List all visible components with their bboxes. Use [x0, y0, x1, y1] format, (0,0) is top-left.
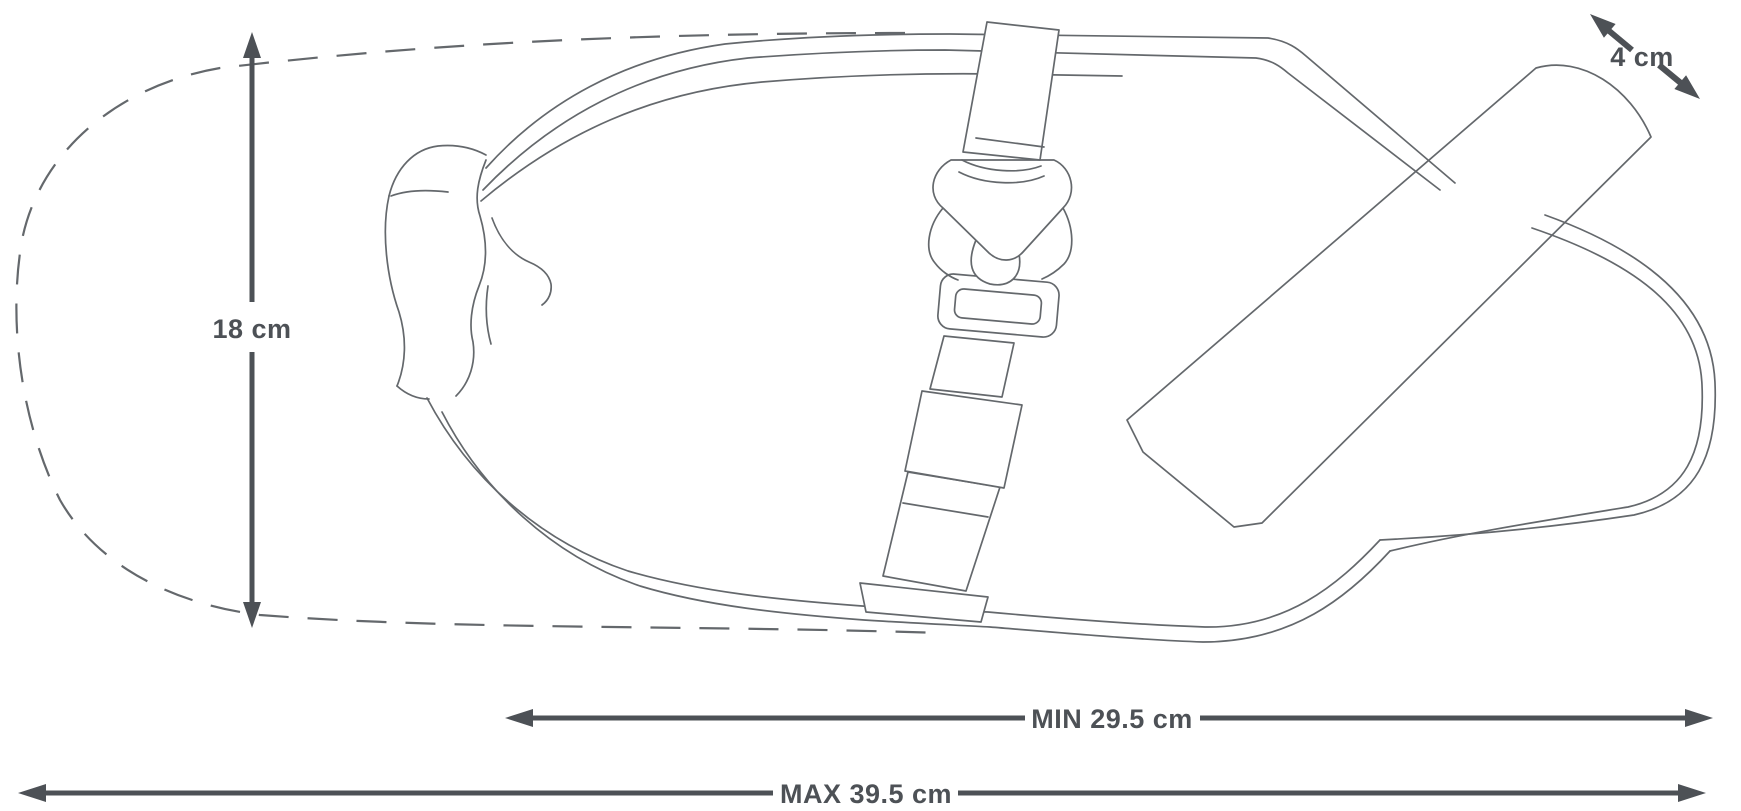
strap-width-dimension: 4 cm [1584, 7, 1706, 106]
max-length-label: MAX 39.5 cm [780, 779, 952, 809]
saddle-pack-dimension-diagram: 18 cm 4 cm MIN 29.5 cm MAX 39.5 cm [0, 0, 1741, 811]
strap-mid-segment [930, 336, 1014, 397]
min-length-arrow-right [1685, 709, 1713, 727]
height-arrow-down [243, 602, 261, 628]
min-length-dimension: MIN 29.5 cm [505, 704, 1713, 734]
max-length-dimension: MAX 39.5 cm [18, 779, 1706, 809]
min-length-label: MIN 29.5 cm [1031, 704, 1193, 734]
strap-keeper [905, 391, 1022, 488]
height-dimension: 18 cm [212, 32, 291, 628]
diagram-canvas: 18 cm 4 cm MIN 29.5 cm MAX 39.5 cm [0, 0, 1741, 811]
height-label: 18 cm [212, 314, 291, 344]
max-length-arrow-right [1678, 784, 1706, 802]
